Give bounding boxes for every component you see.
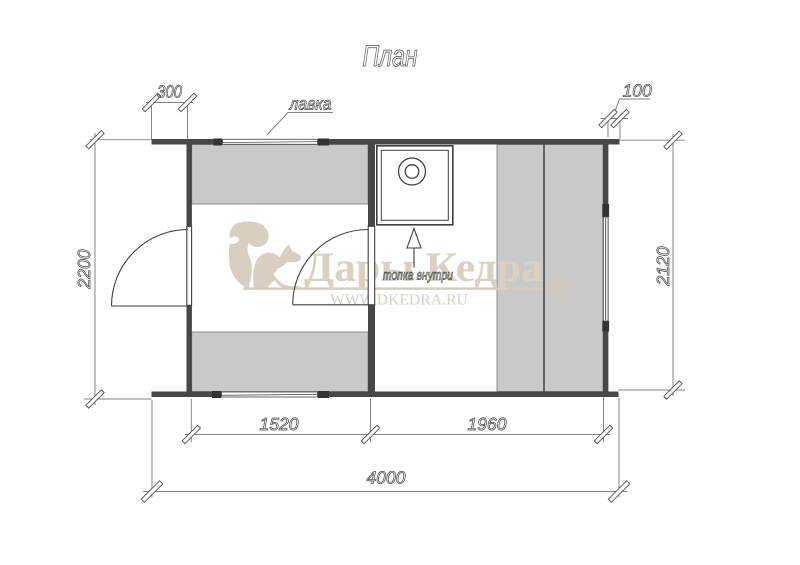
svg-text:100: 100 (623, 81, 652, 101)
svg-text:План: План (363, 40, 418, 73)
svg-text:2200: 2200 (74, 249, 94, 289)
svg-text:4000: 4000 (367, 468, 406, 488)
svg-text:1960: 1960 (468, 414, 507, 434)
svg-text:лавка: лавка (289, 94, 332, 114)
svg-text:1520: 1520 (260, 414, 299, 434)
svg-text:2120: 2120 (653, 246, 673, 286)
svg-text:WWW.DKEDRA.RU: WWW.DKEDRA.RU (330, 292, 470, 309)
svg-text:топка внутри: топка внутри (383, 267, 453, 283)
svg-text:300: 300 (157, 82, 182, 102)
